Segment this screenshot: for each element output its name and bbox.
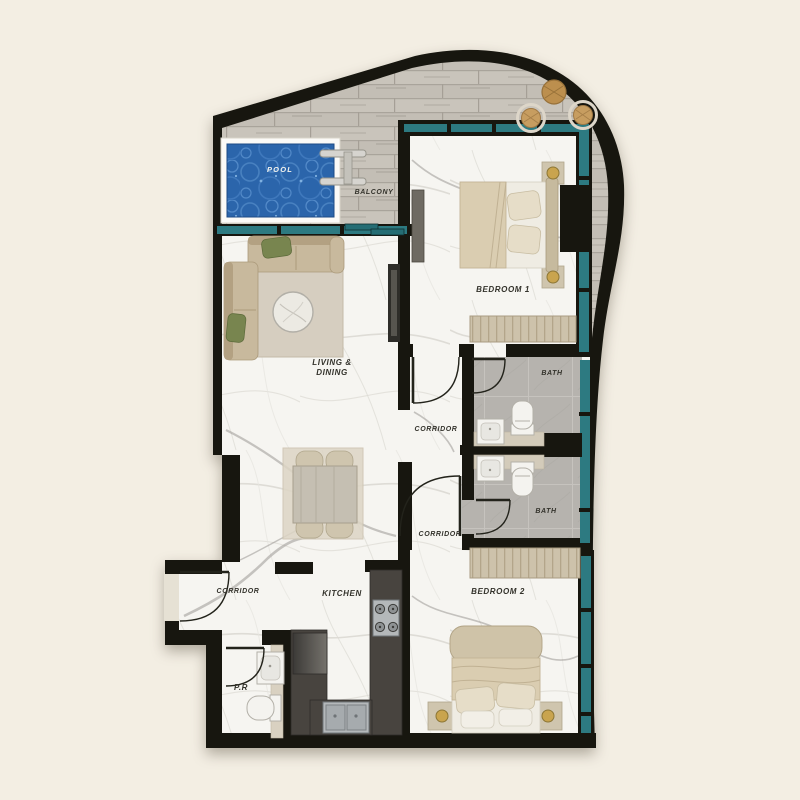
headboard: [546, 178, 558, 272]
label-corridor-entry: CORRIDOR: [217, 587, 260, 597]
wardrobe: [470, 316, 576, 342]
wardrobe: [470, 548, 580, 578]
floor-plan-svg: [0, 0, 800, 800]
label-powder-room: P.R: [234, 683, 248, 693]
toilet: [512, 401, 533, 429]
toilet: [247, 696, 274, 720]
label-bedroom1: BEDROOM 1: [476, 285, 530, 295]
dining-set: [283, 448, 363, 539]
deck-chair: [570, 102, 597, 129]
green-pillow: [261, 236, 292, 259]
dining-table: [293, 466, 357, 523]
headboard: [450, 626, 542, 662]
lamp: [547, 167, 559, 179]
tv-console: [388, 264, 400, 342]
pillow: [461, 711, 494, 728]
entry-threshold: [164, 572, 179, 621]
pillow: [455, 686, 495, 714]
bedroom1-column: [560, 185, 590, 252]
label-living-line1: LIVING &: [312, 358, 351, 368]
label-bath1: BATH: [541, 369, 562, 379]
deck-table: [542, 80, 566, 104]
toilet: [512, 468, 533, 496]
pillow: [507, 224, 542, 254]
label-pool: POOL: [267, 165, 293, 175]
lamp: [542, 710, 554, 722]
pillow: [496, 682, 536, 709]
pillow: [506, 190, 541, 221]
label-living-line2: DINING: [312, 368, 351, 378]
label-kitchen: KITCHEN: [322, 589, 362, 599]
fridge: [293, 633, 327, 674]
label-corridor-main: CORRIDOR: [415, 425, 458, 435]
sliding-door-pane: [371, 229, 404, 235]
lamp: [436, 710, 448, 722]
coffee-table: [273, 292, 313, 332]
lamp: [547, 271, 559, 283]
label-bedroom2: BEDROOM 2: [471, 587, 525, 597]
floor-plan: POOL BALCONY BEDROOM 1 LIVING & DINING C…: [0, 0, 800, 800]
bath-wall-block: [543, 433, 582, 457]
bedroom1-dresser: [412, 190, 424, 262]
green-pillow: [226, 313, 247, 343]
deck-chair: [518, 105, 545, 132]
label-living-dining: LIVING & DINING: [312, 358, 351, 378]
pr-door-floor: [222, 630, 262, 646]
pillow: [499, 709, 532, 726]
entry-floor: [178, 574, 224, 632]
label-corridor-south: CORRIDOR: [419, 530, 462, 540]
label-bath2: BATH: [535, 507, 556, 517]
label-balcony: BALCONY: [355, 188, 394, 198]
